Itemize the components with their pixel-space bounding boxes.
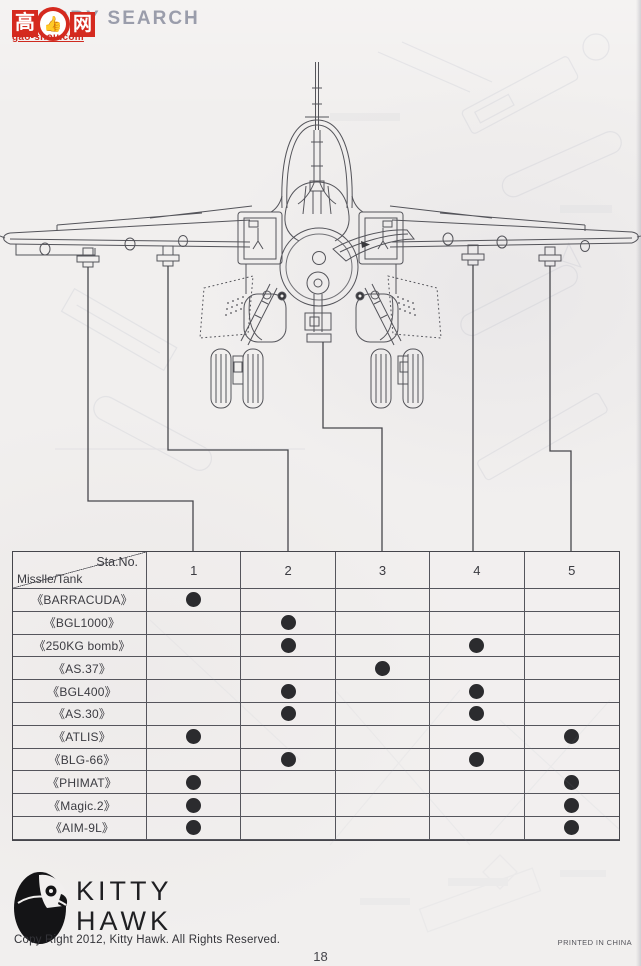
station-dot — [281, 706, 296, 721]
station-header-2: 2 — [241, 552, 335, 589]
table-cell-station-2 — [241, 703, 335, 726]
table-cell-station-3 — [336, 612, 430, 635]
station-dot — [186, 729, 201, 744]
table-cell-station-5 — [525, 612, 619, 635]
table-cell-station-2 — [241, 817, 335, 840]
station-dot — [469, 752, 484, 767]
leader-station-2 — [168, 266, 288, 551]
corner-label-sta-no: Sta.No. — [96, 555, 138, 569]
table-cell-station-2 — [241, 794, 335, 817]
table-cell-station-4 — [430, 703, 524, 726]
station-dot — [564, 729, 579, 744]
cockpit-dome — [285, 181, 349, 241]
table-cell-station-5 — [525, 817, 619, 840]
table-cell-station-1 — [147, 703, 241, 726]
station-dot — [281, 638, 296, 653]
pylon-station-4 — [462, 245, 484, 265]
table-cell-station-5 — [525, 794, 619, 817]
brand-line-2: HAWK — [76, 906, 173, 936]
table-cell-station-4 — [430, 657, 524, 680]
weapon-row-label: 《PHIMAT》 — [13, 771, 147, 794]
table-cell-station-1 — [147, 817, 241, 840]
weapon-row-label: 《BGL1000》 — [13, 612, 147, 635]
table-cell-station-3 — [336, 817, 430, 840]
fuselage-nose — [280, 228, 358, 306]
table-cell-station-4 — [430, 726, 524, 749]
table-cell-station-1 — [147, 635, 241, 658]
instruction-page: HOBBY SEARCH 高 网 👍 gao-shou.com — [0, 0, 641, 966]
kitty-hawk-wordmark: KITTY HAWK — [76, 876, 173, 936]
pylon-station-5 — [539, 247, 561, 266]
station-dot — [281, 684, 296, 699]
table-cell-station-4 — [430, 771, 524, 794]
station-loadout-table: Sta.No.Misslle/Tank12345《BARRACUDA》《BGL1… — [12, 551, 620, 841]
station-dot — [469, 706, 484, 721]
table-cell-station-4 — [430, 749, 524, 772]
station-dot — [281, 752, 296, 767]
weapon-row-label: 《BARRACUDA》 — [13, 589, 147, 612]
table-cell-station-4 — [430, 589, 524, 612]
station-header-4: 4 — [430, 552, 524, 589]
station-dot — [469, 684, 484, 699]
leader-station-3 — [323, 342, 382, 551]
perforated-door-left — [200, 276, 253, 338]
table-cell-station-3 — [336, 726, 430, 749]
aircraft-drawing — [0, 62, 641, 408]
table-cell-station-5 — [525, 771, 619, 794]
weapon-row-label: 《AIM-9L》 — [13, 817, 147, 840]
nose-gear — [305, 294, 331, 342]
weapon-row-label: 《Magic.2》 — [13, 794, 147, 817]
weapon-row-label: 《BLG-66》 — [13, 749, 147, 772]
table-cell-station-3 — [336, 635, 430, 658]
table-cell-station-2 — [241, 749, 335, 772]
station-dot — [186, 592, 201, 607]
station-leader-lines — [88, 265, 571, 551]
scan-edge-shadow — [636, 0, 641, 966]
station-dot — [469, 638, 484, 653]
page-number: 18 — [0, 949, 641, 964]
table-cell-station-2 — [241, 612, 335, 635]
table-cell-station-2 — [241, 771, 335, 794]
table-cell-station-5 — [525, 726, 619, 749]
table-cell-station-1 — [147, 771, 241, 794]
pylon-station-2 — [157, 246, 179, 266]
station-header-1: 1 — [147, 552, 241, 589]
table-cell-station-5 — [525, 703, 619, 726]
table-cell-station-2 — [241, 635, 335, 658]
table-cell-station-1 — [147, 657, 241, 680]
table-cell-station-5 — [525, 657, 619, 680]
landing-gear-left — [211, 284, 286, 408]
brand-line-1: KITTY — [76, 876, 173, 906]
weapon-row-label: 《ATLIS》 — [13, 726, 147, 749]
station-dot — [375, 661, 390, 676]
table-cell-station-4 — [430, 635, 524, 658]
station-dot — [186, 775, 201, 790]
table-cell-station-3 — [336, 749, 430, 772]
table-cell-station-5 — [525, 635, 619, 658]
weapon-row-label: 《BGL400》 — [13, 680, 147, 703]
table-cell-station-2 — [241, 680, 335, 703]
weapon-row-label: 《AS.37》 — [13, 657, 147, 680]
pylon-station-1 — [77, 248, 99, 267]
table-cell-station-3 — [336, 703, 430, 726]
printed-in-china: PRINTED IN CHINA — [558, 938, 632, 947]
station-dot — [564, 798, 579, 813]
open-panel-blade — [333, 230, 414, 261]
station-dot — [564, 820, 579, 835]
weapon-row-label: 《AS.30》 — [13, 703, 147, 726]
station-dot — [564, 775, 579, 790]
table-cell-station-3 — [336, 589, 430, 612]
table-cell-station-5 — [525, 680, 619, 703]
table-cell-station-1 — [147, 726, 241, 749]
weapon-row-label: 《250KG bomb》 — [13, 635, 147, 658]
table-corner-cell: Sta.No.Misslle/Tank — [13, 552, 147, 589]
table-cell-station-4 — [430, 612, 524, 635]
copyright-text: Copy Right 2012, Kitty Hawk. All Rights … — [14, 934, 280, 946]
table-cell-station-4 — [430, 794, 524, 817]
aircraft-front-view-diagram — [0, 0, 641, 551]
table-cell-station-1 — [147, 612, 241, 635]
table-cell-station-3 — [336, 680, 430, 703]
table-cell-station-3 — [336, 771, 430, 794]
table-cell-station-1 — [147, 589, 241, 612]
station-dot — [281, 615, 296, 630]
table-cell-station-3 — [336, 794, 430, 817]
table-cell-station-5 — [525, 749, 619, 772]
table-cell-station-4 — [430, 680, 524, 703]
table-cell-station-1 — [147, 680, 241, 703]
table-cell-station-2 — [241, 726, 335, 749]
station-header-3: 3 — [336, 552, 430, 589]
table-cell-station-2 — [241, 589, 335, 612]
station-dot — [186, 798, 201, 813]
pitot-tube-icon — [298, 62, 336, 204]
table-cell-station-2 — [241, 657, 335, 680]
corner-label-missile-tank: Misslle/Tank — [17, 572, 82, 586]
table-cell-station-4 — [430, 817, 524, 840]
table-cell-station-5 — [525, 589, 619, 612]
station-dot — [186, 820, 201, 835]
table-cell-station-1 — [147, 794, 241, 817]
station-header-5: 5 — [525, 552, 619, 589]
table-cell-station-1 — [147, 749, 241, 772]
table-cell-station-3 — [336, 657, 430, 680]
leader-station-1 — [88, 267, 193, 551]
left-wing — [0, 206, 252, 255]
